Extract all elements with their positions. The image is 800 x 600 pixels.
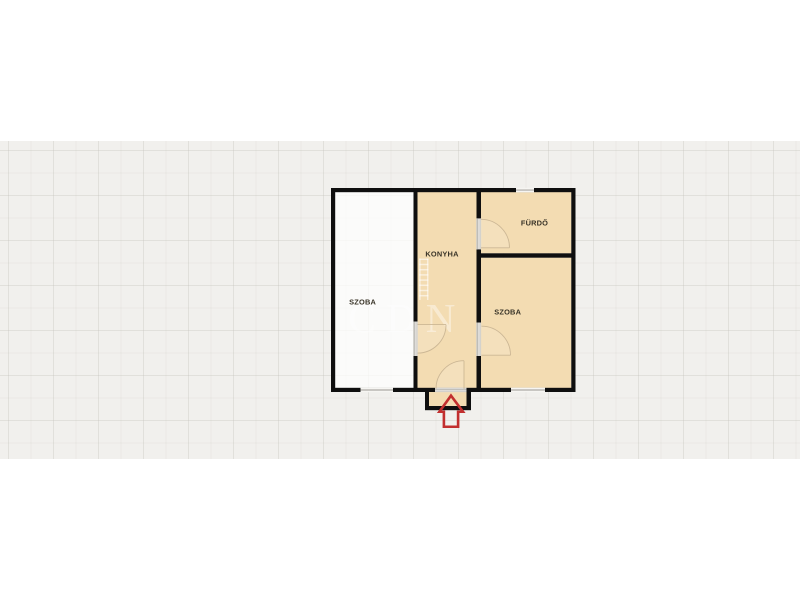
svg-text:FÜRDŐ: FÜRDŐ	[521, 219, 548, 228]
svg-text:SZOBA: SZOBA	[494, 308, 521, 317]
svg-text:KONYHA: KONYHA	[425, 250, 459, 259]
svg-text:D: D	[386, 295, 416, 341]
svg-text:SZOBA: SZOBA	[349, 298, 376, 307]
